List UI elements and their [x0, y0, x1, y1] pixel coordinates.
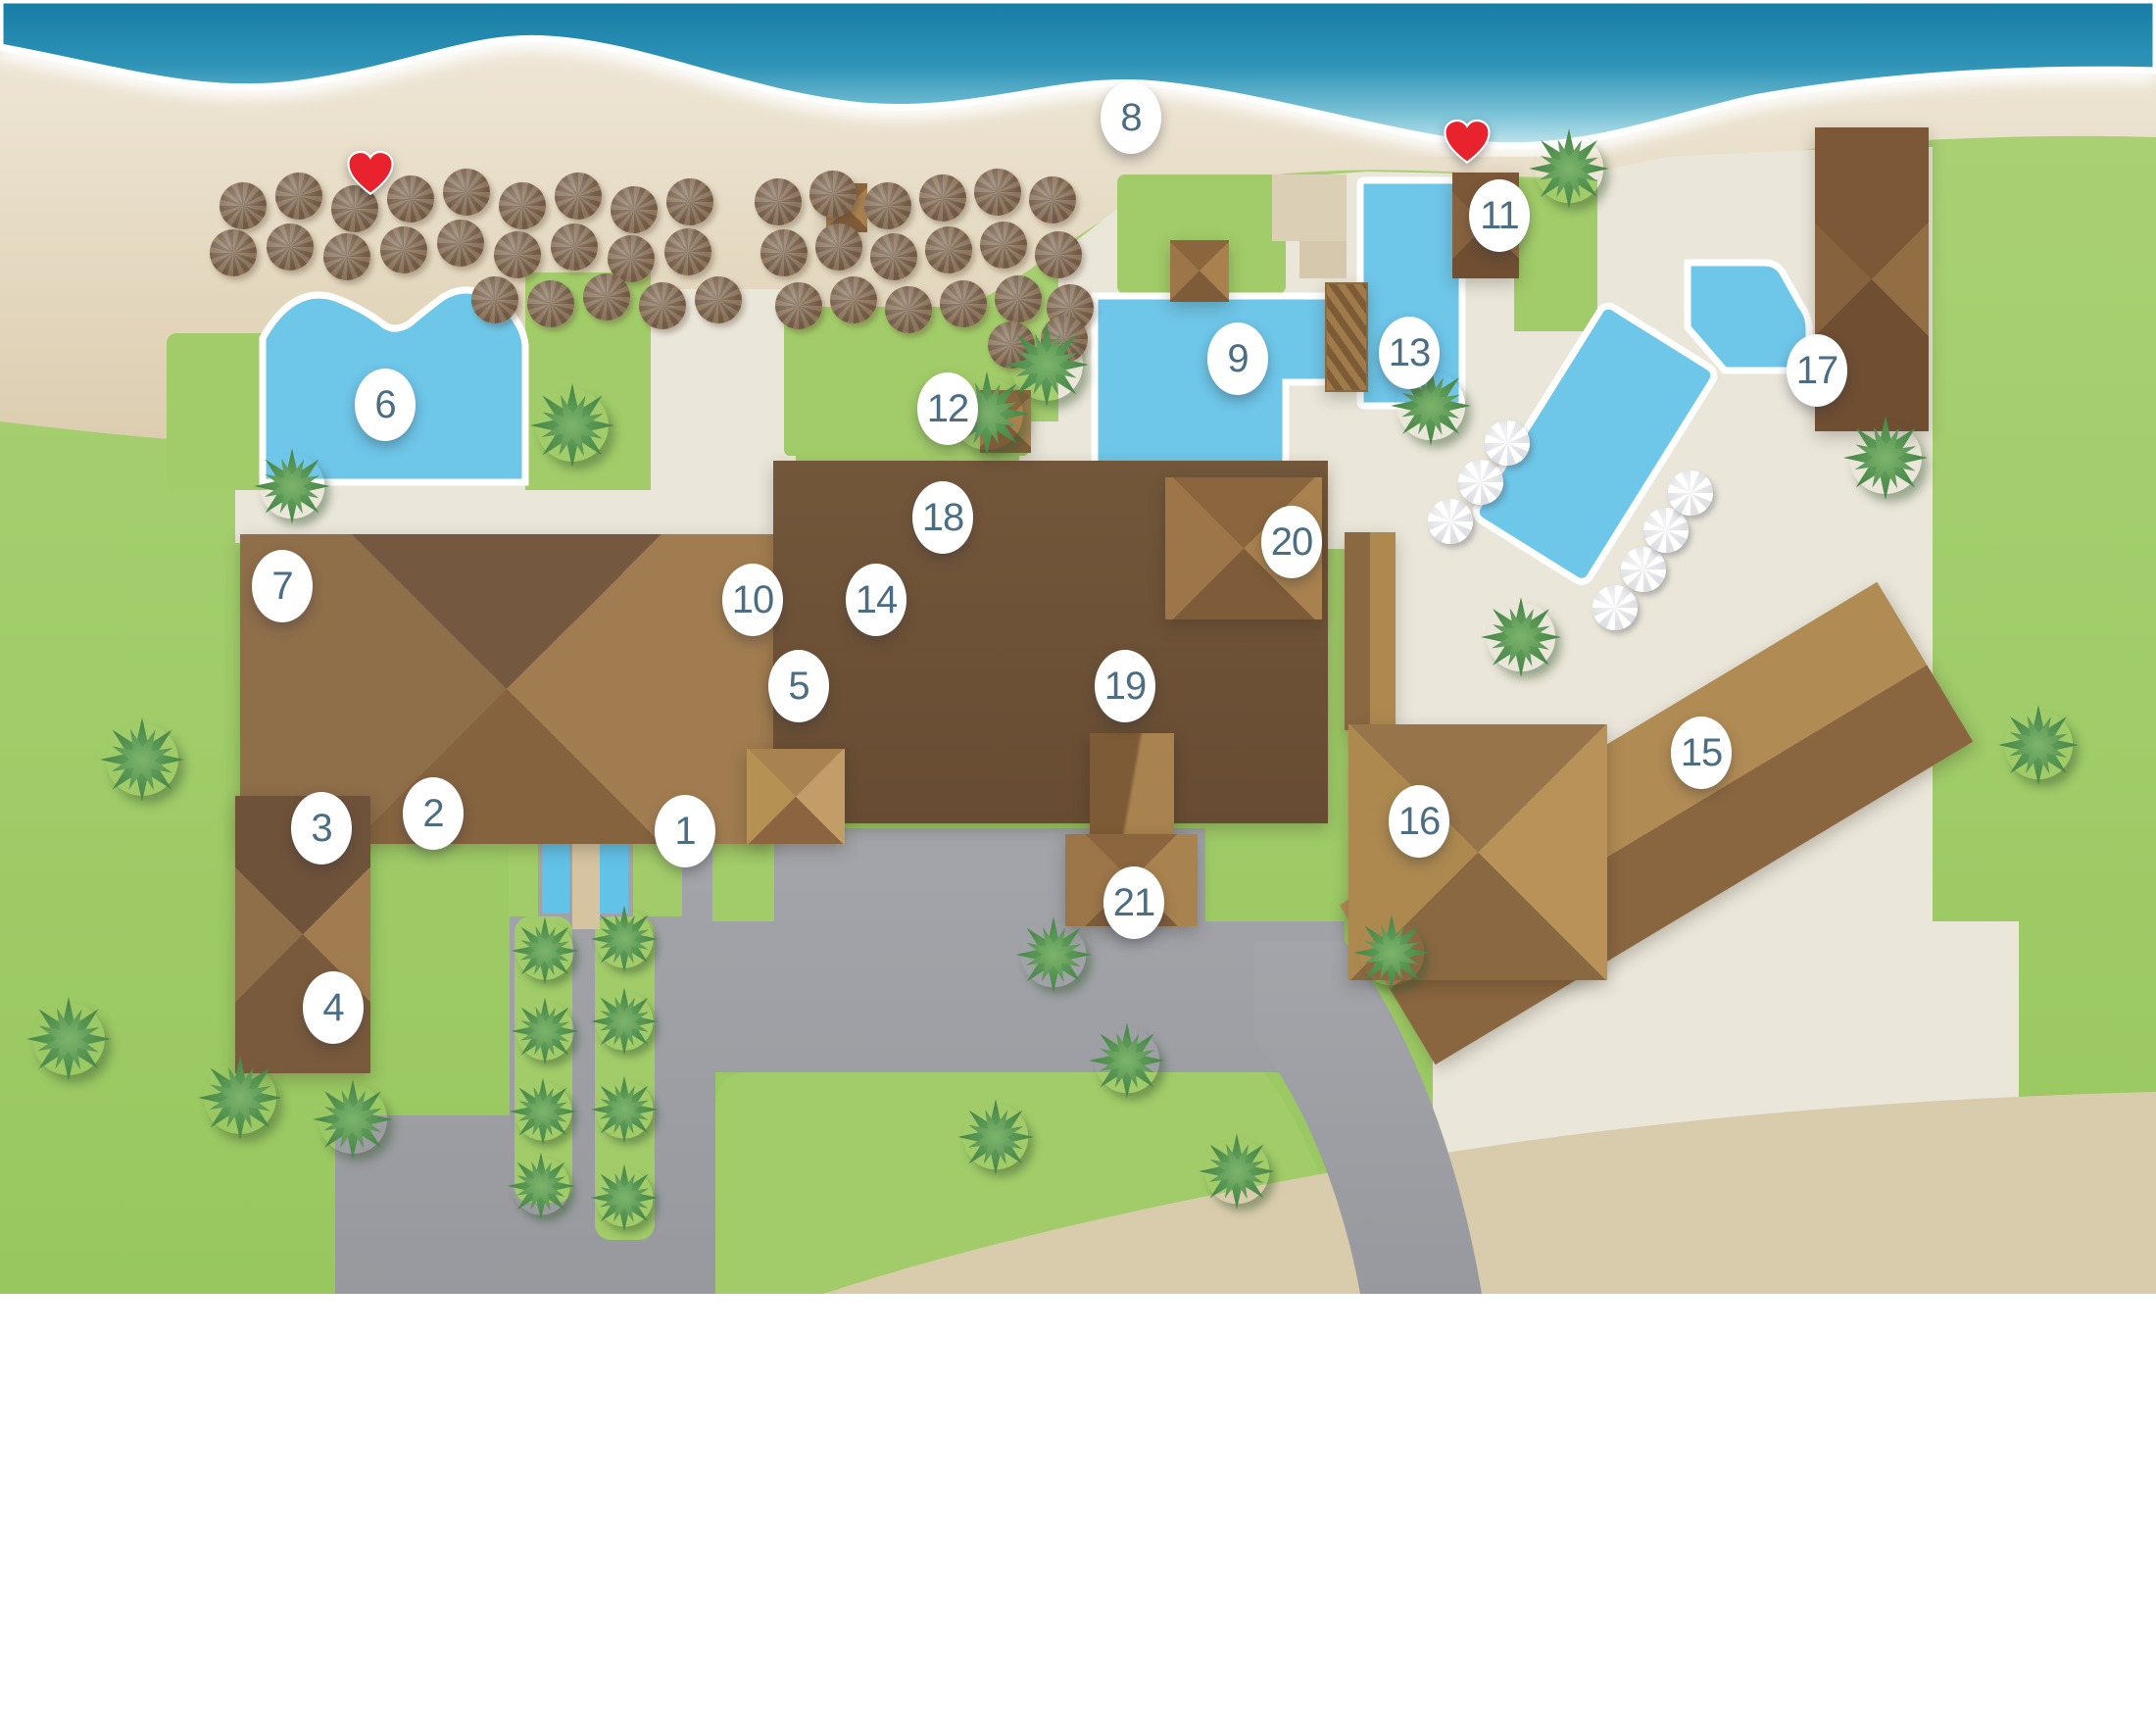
- beach-umbrella-icon: [885, 286, 932, 333]
- beach-umbrella-icon: [267, 223, 314, 271]
- beach-umbrella-icon: [995, 275, 1042, 322]
- palm-tree-icon: [1015, 916, 1091, 992]
- marker-number: 2: [422, 792, 443, 836]
- beach-umbrella-icon: [980, 222, 1027, 269]
- map-marker-gaucho-grill: 20: [1261, 506, 1322, 578]
- palm-tree-icon: [1998, 705, 2079, 785]
- palm-tree-icon: [510, 1078, 577, 1146]
- marker-number: 19: [1104, 665, 1147, 709]
- beach-umbrella-icon: [870, 233, 917, 280]
- map-marker-rendezvous-bar: 10: [722, 564, 783, 636]
- legend: DREAMS® Sands Cancun RESORT & SPA 1. Fro…: [0, 1294, 2156, 1730]
- map-marker-main-beach: 8: [1101, 81, 1161, 154]
- marker-number: 13: [1389, 331, 1431, 375]
- beach-umbrella-icon: [494, 231, 541, 278]
- white-umbrella-icon: [1458, 460, 1503, 505]
- beach-steps-lower: [1299, 241, 1347, 278]
- map-marker-himitsu: 15: [1671, 717, 1732, 789]
- palm-tree-icon: [1481, 597, 1561, 677]
- marker-number: 12: [927, 387, 969, 431]
- beach-umbrella-icon: [437, 220, 484, 267]
- beach-umbrella-icon: [755, 178, 802, 225]
- beach-umbrella-icon: [471, 276, 518, 323]
- beach-umbrella-icon: [1029, 176, 1076, 223]
- beach-umbrella-icon: [809, 171, 857, 218]
- building-tower: [1090, 733, 1174, 841]
- resort-map-page: 123456789101112131415161718192021 DREAMS…: [0, 0, 2156, 1730]
- beach-umbrella-icon: [864, 182, 911, 229]
- beach-umbrella-icon: [664, 228, 711, 275]
- beach-umbrella-icon: [639, 282, 686, 329]
- palm-tree-icon: [1353, 914, 1429, 990]
- pavilion-main-pool: [1170, 240, 1229, 302]
- white-umbrella-icon: [1643, 508, 1689, 553]
- beach-umbrella-icon: [210, 229, 257, 276]
- marker-number: 6: [374, 383, 395, 427]
- romantic-spot-heart-icon: [345, 151, 396, 203]
- beach-umbrella-icon: [940, 280, 987, 327]
- marker-number: 7: [271, 565, 292, 609]
- white-umbrella-icon: [1668, 470, 1713, 516]
- map-marker-manatees-bar: 13: [1379, 317, 1440, 389]
- marker-number: 11: [1480, 194, 1519, 238]
- palm-tree-icon: [512, 998, 579, 1065]
- white-umbrella-icon: [1621, 547, 1666, 592]
- beach-umbrella-icon: [551, 223, 598, 271]
- beach-umbrella-icon: [775, 282, 822, 329]
- palm-tree-icon: [591, 1076, 659, 1144]
- map-marker-half-time-bar: 21: [1103, 866, 1164, 939]
- pavilion-preferred-club: [747, 749, 845, 844]
- marker-number: 21: [1113, 881, 1155, 925]
- beach-umbrella-icon: [443, 169, 490, 216]
- beach-umbrella-icon: [695, 276, 742, 323]
- resort-map: 123456789101112131415161718192021: [0, 0, 2156, 1294]
- beach-umbrella-icon: [666, 178, 713, 225]
- map-marker-spa: 3: [291, 792, 352, 865]
- beach-umbrella-icon: [380, 226, 427, 273]
- beach-umbrella-icon: [974, 169, 1021, 216]
- map-marker-el-patio: 16: [1389, 785, 1449, 858]
- palm-tree-icon: [591, 1164, 659, 1232]
- marker-number: 9: [1227, 337, 1248, 381]
- map-marker-fitness-center: 4: [303, 971, 364, 1044]
- map-marker-concierge-desk: 2: [403, 777, 464, 850]
- marker-number: 5: [788, 665, 808, 709]
- map-marker-main-pool: 9: [1207, 322, 1268, 395]
- palm-tree-icon: [100, 717, 184, 802]
- map-marker-coco-cafe: 19: [1095, 650, 1155, 722]
- pool-bridge: [1325, 282, 1368, 392]
- white-umbrella-icon: [1428, 499, 1473, 544]
- beach-umbrella-icon: [760, 229, 808, 276]
- beach-steps: [1272, 174, 1347, 241]
- palm-tree-icon: [1199, 1133, 1274, 1209]
- map-marker-front-desk: 1: [655, 795, 715, 867]
- marker-number: 17: [1796, 349, 1838, 393]
- beach-umbrella-icon: [583, 273, 630, 321]
- palm-tree-icon: [508, 1153, 575, 1220]
- map-marker-preferred-club-pool: 6: [355, 369, 416, 441]
- palm-tree-icon: [957, 1099, 1033, 1174]
- palm-tree-icon: [1529, 128, 1609, 209]
- beach-umbrella-icon: [323, 233, 370, 280]
- beach-umbrella-icon: [830, 276, 877, 323]
- marker-number: 3: [311, 807, 331, 851]
- marker-number: 8: [1120, 96, 1141, 140]
- beach-umbrella-icon: [555, 173, 602, 220]
- marker-number: 15: [1681, 731, 1723, 775]
- palm-tree-icon: [26, 997, 111, 1081]
- marker-number: 1: [674, 810, 695, 854]
- beach-umbrella-icon: [275, 173, 322, 220]
- marker-number: 20: [1271, 520, 1313, 565]
- palm-tree-icon: [1843, 416, 1928, 500]
- beach-umbrella-icon: [919, 174, 966, 222]
- white-umbrella-icon: [1592, 585, 1638, 630]
- beach-umbrella-icon: [527, 280, 574, 327]
- beach-umbrella-icon: [220, 182, 267, 229]
- map-marker-food-wine-concierge: 7: [252, 550, 313, 622]
- marker-number: 18: [922, 496, 964, 540]
- building-el-patio-wing: [1345, 532, 1396, 730]
- romantic-spot-heart-icon: [1442, 120, 1493, 172]
- marker-number: 16: [1398, 800, 1441, 844]
- marker-number: 14: [856, 578, 898, 622]
- beach-umbrella-icon: [925, 226, 972, 273]
- palm-tree-icon: [1089, 1022, 1164, 1098]
- beach-umbrella-icon: [611, 186, 658, 233]
- map-marker-explorers-club-kids-pool: 17: [1787, 334, 1847, 407]
- map-marker-portofino: 14: [846, 564, 906, 636]
- palm-tree-icon: [254, 448, 329, 523]
- marker-number: 4: [322, 986, 343, 1030]
- palm-tree-icon: [591, 988, 659, 1056]
- map-marker-barefoot-grill-olio: 11: [1469, 179, 1530, 252]
- white-umbrella-icon: [1485, 420, 1530, 466]
- palm-tree-icon: [198, 1056, 282, 1140]
- map-marker-preferred-club-lounge: 5: [768, 650, 829, 722]
- beach-umbrella-icon: [1035, 231, 1082, 278]
- palm-tree-icon: [591, 906, 659, 973]
- marker-number: 10: [732, 578, 774, 622]
- map-marker-world-cafe: 18: [912, 481, 973, 554]
- palm-tree-icon: [512, 917, 579, 985]
- palm-tree-icon: [313, 1079, 393, 1160]
- palm-tree-icon: [530, 383, 614, 468]
- map-marker-barracuda-bar: 12: [917, 372, 978, 445]
- beach-umbrella-icon: [499, 182, 546, 229]
- beach-umbrella-icon: [815, 223, 862, 271]
